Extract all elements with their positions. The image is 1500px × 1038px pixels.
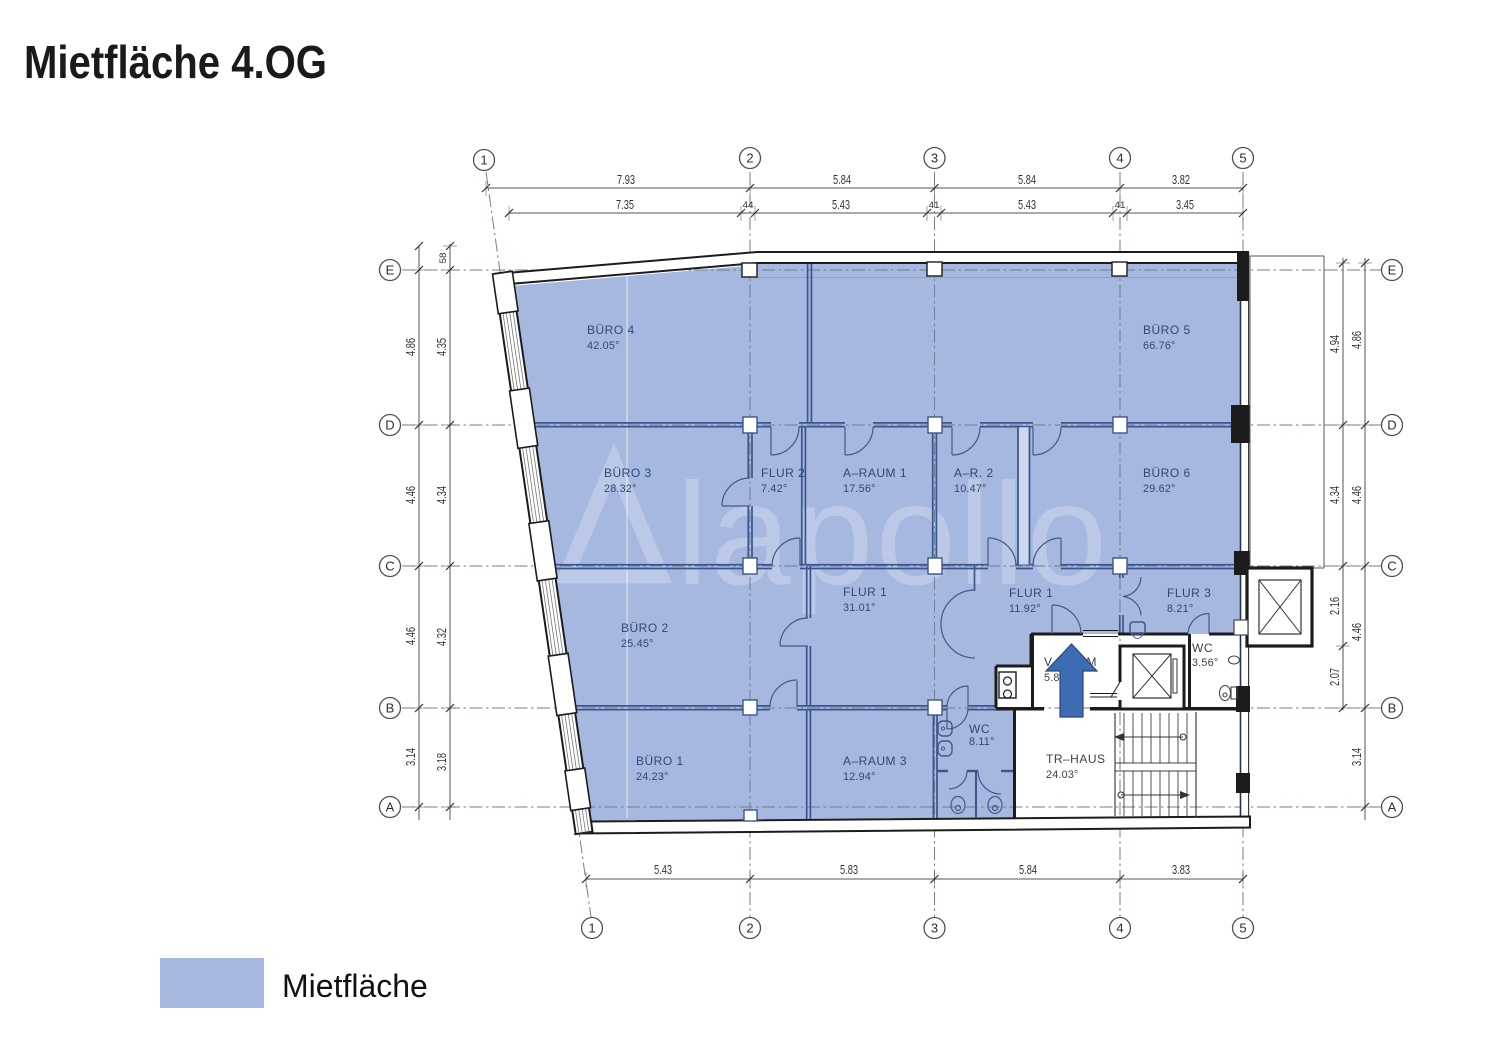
svg-text:3.45: 3.45 (1176, 197, 1194, 212)
svg-text:A: A (386, 800, 395, 815)
svg-text:5.83: 5.83 (840, 862, 858, 877)
svg-text:24.23°: 24.23° (636, 771, 669, 783)
svg-text:7.42°: 7.42° (761, 483, 787, 495)
svg-text:BÜRO 5: BÜRO 5 (1143, 323, 1191, 337)
svg-text:3: 3 (931, 151, 938, 166)
svg-text:4.86: 4.86 (1349, 331, 1364, 349)
svg-text:25.45°: 25.45° (621, 638, 654, 650)
svg-text:3.14: 3.14 (1349, 748, 1364, 766)
svg-text:2: 2 (746, 921, 753, 936)
svg-text:17.56°: 17.56° (843, 483, 876, 495)
svg-text:3.18: 3.18 (434, 753, 449, 771)
svg-text:A: A (1388, 800, 1397, 815)
svg-text:11.92°: 11.92° (1009, 603, 1041, 615)
svg-text:4: 4 (1116, 151, 1123, 166)
svg-text:A–R. 2: A–R. 2 (954, 466, 994, 480)
svg-text:44: 44 (743, 200, 754, 211)
svg-text:4.46: 4.46 (1349, 486, 1364, 504)
svg-text:WC: WC (969, 722, 990, 736)
svg-text:5.84: 5.84 (833, 172, 851, 187)
svg-text:4.32: 4.32 (434, 628, 449, 646)
svg-text:29.62°: 29.62° (1143, 483, 1176, 495)
svg-text:BÜRO 1: BÜRO 1 (636, 754, 684, 768)
svg-text:E: E (1388, 263, 1397, 278)
svg-text:31.01°: 31.01° (843, 602, 876, 614)
svg-text:28.32°: 28.32° (604, 483, 637, 495)
svg-text:WC: WC (1192, 641, 1213, 655)
svg-text:TR–HAUS: TR–HAUS (1046, 752, 1106, 766)
svg-text:BÜRO 2: BÜRO 2 (621, 621, 669, 635)
svg-text:12.94°: 12.94° (843, 771, 876, 783)
svg-text:Mietfläche: Mietfläche (282, 968, 428, 1004)
svg-text:4.46: 4.46 (403, 627, 418, 645)
svg-text:66.76°: 66.76° (1143, 340, 1176, 352)
svg-text:5: 5 (1239, 921, 1246, 936)
svg-text:42.05°: 42.05° (587, 340, 620, 352)
svg-text:1: 1 (588, 921, 595, 936)
svg-text:3: 3 (931, 921, 938, 936)
svg-text:2.16: 2.16 (1327, 597, 1342, 615)
svg-text:10.47°: 10.47° (954, 483, 987, 495)
svg-text:5.43: 5.43 (654, 862, 672, 877)
svg-text:5.43: 5.43 (832, 197, 850, 212)
svg-text:4.34: 4.34 (1327, 486, 1342, 504)
svg-text:41: 41 (1115, 200, 1126, 211)
svg-text:2: 2 (746, 151, 753, 166)
svg-text:A–RAUM 1: A–RAUM 1 (843, 466, 907, 480)
svg-text:D: D (385, 418, 394, 433)
svg-text:2.07: 2.07 (1327, 668, 1342, 686)
svg-text:5: 5 (1239, 151, 1246, 166)
svg-text:C: C (1387, 559, 1396, 574)
svg-text:3.83: 3.83 (1172, 862, 1190, 877)
svg-text:BÜRO 4: BÜRO 4 (587, 323, 635, 337)
svg-text:4: 4 (1116, 921, 1123, 936)
svg-text:7.93: 7.93 (617, 172, 635, 187)
svg-text:7.35: 7.35 (616, 197, 634, 212)
svg-text:Mietfläche 4.OG: Mietfläche 4.OG (24, 36, 327, 88)
svg-text:4.86: 4.86 (403, 338, 418, 356)
svg-text:FLUR 1: FLUR 1 (1009, 586, 1053, 600)
svg-text:B: B (386, 701, 395, 716)
svg-text:BÜRO 3: BÜRO 3 (604, 466, 652, 480)
svg-text:5.43: 5.43 (1018, 197, 1036, 212)
svg-text:8.11°: 8.11° (969, 736, 995, 748)
svg-text:D: D (1387, 418, 1396, 433)
svg-text:FLUR 3: FLUR 3 (1167, 586, 1211, 600)
svg-text:BÜRO 6: BÜRO 6 (1143, 466, 1191, 480)
svg-text:4.46: 4.46 (403, 486, 418, 504)
svg-text:FLUR 2: FLUR 2 (761, 466, 805, 480)
svg-text:4.94: 4.94 (1327, 335, 1342, 353)
svg-text:41: 41 (929, 200, 940, 211)
svg-text:1: 1 (480, 153, 487, 168)
svg-text:B: B (1388, 701, 1397, 716)
svg-text:A–RAUM 3: A–RAUM 3 (843, 754, 907, 768)
svg-text:3.56°: 3.56° (1192, 657, 1218, 669)
svg-text:8.21°: 8.21° (1167, 603, 1193, 615)
svg-text:5.84: 5.84 (1019, 862, 1037, 877)
svg-text:4.35: 4.35 (434, 338, 449, 356)
svg-text:5.84: 5.84 (1018, 172, 1036, 187)
svg-text:4.34: 4.34 (434, 486, 449, 504)
svg-text:3.14: 3.14 (403, 748, 418, 766)
svg-text:C: C (385, 559, 394, 574)
svg-text:E: E (386, 263, 395, 278)
svg-text:4.46: 4.46 (1349, 623, 1364, 641)
svg-text:FLUR 1: FLUR 1 (843, 585, 887, 599)
svg-text:3.82: 3.82 (1172, 172, 1190, 187)
svg-text:24.03°: 24.03° (1046, 769, 1079, 781)
svg-text:58: 58 (438, 253, 449, 264)
